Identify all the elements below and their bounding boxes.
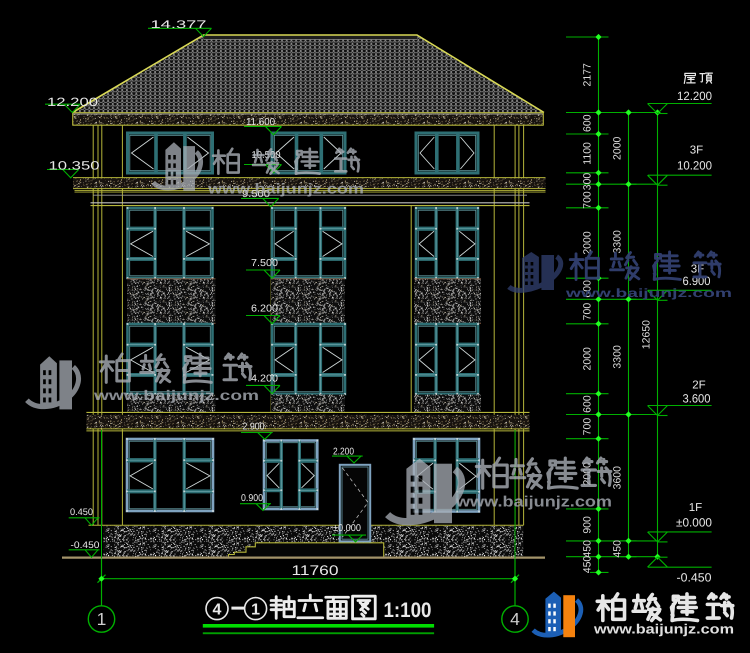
svg-text:12.200: 12.200 [47,95,98,109]
svg-text:-0.450: -0.450 [677,571,712,585]
svg-text:3300: 3300 [611,230,623,254]
svg-text:www.baijunjz.com: www.baijunjz.com [593,622,734,637]
svg-text:2000: 2000 [581,347,593,371]
svg-text:www.baijunjz.com: www.baijunjz.com [455,494,612,511]
svg-text:700: 700 [581,418,593,436]
svg-text:±0.000: ±0.000 [333,523,362,534]
svg-text:12650: 12650 [640,320,652,349]
svg-text:700: 700 [581,303,593,321]
svg-text:11760: 11760 [292,562,339,578]
svg-text:2.200: 2.200 [333,447,354,458]
svg-text:www.baijunjz.com: www.baijunjz.com [207,182,364,198]
svg-text:6.200: 6.200 [251,304,278,315]
svg-text:2.900: 2.900 [243,422,265,433]
svg-text:±0.000: ±0.000 [676,516,712,530]
svg-text:600: 600 [581,114,593,132]
svg-text:3F: 3F [690,145,703,157]
svg-text:0.900: 0.900 [241,493,263,504]
svg-text:1:100: 1:100 [384,599,432,622]
svg-text:4: 4 [510,609,520,629]
svg-text:10.200: 10.200 [677,159,712,173]
svg-text:900: 900 [581,516,593,534]
svg-text:3600: 3600 [611,466,623,490]
svg-text:-0.450: -0.450 [71,540,100,551]
svg-text:300: 300 [581,173,593,191]
svg-text:3.600: 3.600 [683,392,711,406]
svg-text:4: 4 [213,602,222,619]
svg-text:450: 450 [581,540,593,558]
svg-text:12.200: 12.200 [677,89,712,103]
svg-text:3300: 3300 [611,345,623,369]
svg-text:2000: 2000 [611,136,623,160]
svg-text:www.baijunjz.com: www.baijunjz.com [564,286,732,300]
svg-text:600: 600 [581,395,593,413]
svg-text:450: 450 [611,540,623,558]
svg-text:0.450: 0.450 [70,507,93,518]
svg-text:www.baijunjz.com: www.baijunjz.com [93,387,259,403]
svg-text:10.350: 10.350 [49,159,100,173]
svg-text:1100: 1100 [581,142,593,165]
svg-text:450: 450 [581,556,593,574]
svg-text:1: 1 [251,602,260,619]
svg-text:2177: 2177 [581,63,593,87]
svg-text:11.600: 11.600 [246,117,275,128]
svg-text:2F: 2F [692,380,705,392]
svg-text:7.500: 7.500 [251,258,278,269]
svg-text:1: 1 [97,609,107,629]
svg-text:700: 700 [581,191,593,209]
svg-text:4.200: 4.200 [251,374,278,385]
svg-text:1F: 1F [689,502,702,514]
svg-text:14.377: 14.377 [151,19,207,31]
